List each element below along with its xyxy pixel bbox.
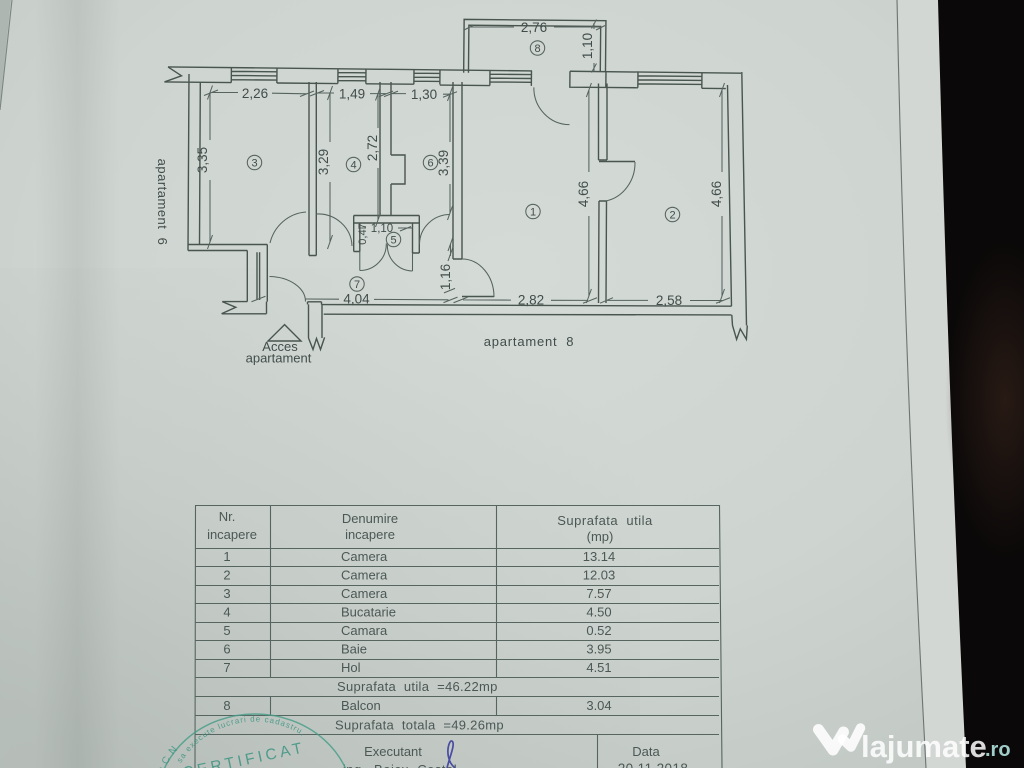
svg-text:2: 2 — [669, 210, 675, 222]
svg-text:apartament 8: apartament 8 — [484, 334, 575, 349]
svg-text:6: 6 — [223, 642, 230, 657]
svg-text:ing. Boicu Costel: ing. Boicu Costel — [343, 762, 457, 768]
svg-text:Camera: Camera — [341, 549, 388, 564]
svg-text:apartament 6: apartament 6 — [155, 159, 170, 246]
svg-text:4,04: 4,04 — [343, 292, 370, 307]
svg-text:7: 7 — [223, 660, 230, 675]
svg-text:13.14: 13.14 — [583, 549, 616, 564]
svg-text:2,26: 2,26 — [242, 86, 268, 101]
svg-text:Suprafata utila: Suprafata utila — [557, 513, 653, 528]
svg-text:Suprafata utila =46.22mp: Suprafata utila =46.22mp — [337, 679, 498, 694]
svg-text:2,76: 2,76 — [521, 20, 547, 35]
svg-text:3: 3 — [251, 158, 257, 170]
svg-text:Suprafata totala =49.26mp: Suprafata totala =49.26mp — [335, 718, 504, 733]
svg-text:Baie: Baie — [341, 642, 367, 657]
svg-text:1: 1 — [223, 549, 230, 564]
svg-text:(mp): (mp) — [587, 529, 614, 544]
svg-text:12.03: 12.03 — [583, 568, 616, 583]
svg-text:3: 3 — [223, 586, 230, 601]
svg-text:1,16: 1,16 — [438, 264, 453, 290]
svg-text:Bucatarie: Bucatarie — [341, 605, 396, 620]
svg-text:2,58: 2,58 — [656, 293, 682, 308]
svg-text:2: 2 — [223, 568, 230, 583]
svg-text:incapere: incapere — [345, 527, 395, 542]
svg-text:Camara: Camara — [341, 623, 388, 638]
svg-text:5: 5 — [390, 235, 396, 247]
svg-text:6: 6 — [427, 158, 433, 170]
svg-text:Nr.: Nr. — [219, 509, 236, 524]
svg-text:1,30: 1,30 — [411, 87, 437, 102]
svg-text:4,66: 4,66 — [709, 181, 724, 207]
svg-text:0.52: 0.52 — [586, 623, 611, 638]
svg-text:Camera: Camera — [341, 586, 388, 601]
svg-text:4: 4 — [223, 605, 230, 620]
svg-text:3,35: 3,35 — [195, 147, 210, 173]
svg-text:3,39: 3,39 — [436, 150, 451, 176]
svg-text:8: 8 — [223, 698, 230, 713]
svg-text:3,29: 3,29 — [316, 149, 331, 175]
svg-text:1,49: 1,49 — [339, 87, 365, 102]
svg-text:lajumate: lajumate — [861, 729, 987, 764]
svg-text:1: 1 — [530, 207, 536, 219]
svg-text:4.50: 4.50 — [586, 605, 611, 620]
svg-text:3.95: 3.95 — [586, 642, 611, 657]
svg-text:1,10: 1,10 — [580, 33, 595, 59]
svg-text:apartament: apartament — [246, 351, 312, 366]
svg-text:4,66: 4,66 — [576, 181, 591, 207]
svg-text:0,47: 0,47 — [357, 223, 369, 244]
svg-text:incapere: incapere — [207, 527, 257, 542]
svg-text:7.57: 7.57 — [586, 586, 611, 601]
svg-text:2,72: 2,72 — [365, 135, 380, 161]
svg-text:20.11.2018: 20.11.2018 — [618, 761, 689, 768]
svg-text:2,82: 2,82 — [518, 293, 544, 308]
svg-text:8: 8 — [534, 43, 540, 55]
svg-text:Denumire: Denumire — [342, 511, 398, 526]
svg-text:Data: Data — [632, 744, 660, 759]
svg-text:Hol: Hol — [341, 660, 361, 675]
svg-text:.ro: .ro — [985, 739, 1011, 761]
svg-text:Camera: Camera — [341, 568, 388, 583]
svg-text:4: 4 — [350, 160, 356, 172]
svg-text:Executant: Executant — [364, 744, 422, 759]
svg-text:Balcon: Balcon — [341, 698, 381, 713]
svg-text:4.51: 4.51 — [586, 660, 611, 675]
svg-text:7: 7 — [354, 279, 360, 291]
svg-text:3.04: 3.04 — [586, 698, 611, 713]
svg-text:5: 5 — [223, 623, 230, 638]
